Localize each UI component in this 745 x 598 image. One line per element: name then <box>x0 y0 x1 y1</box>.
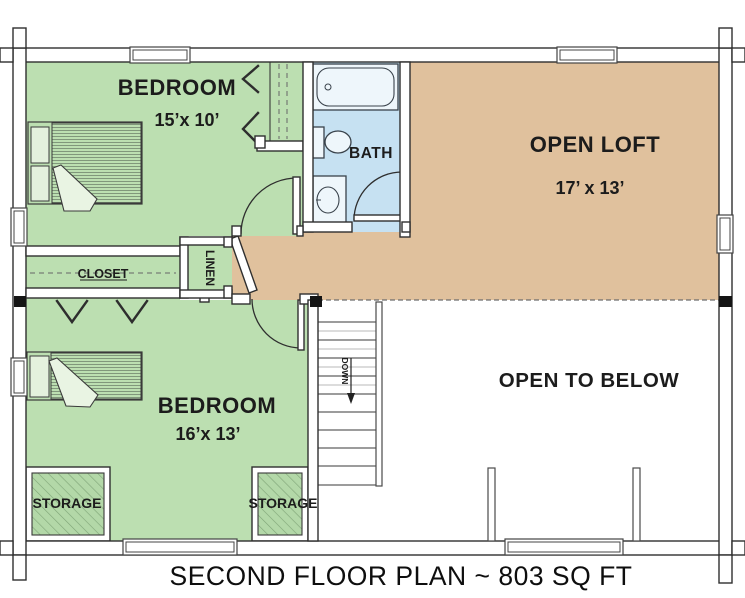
linen-jamb <box>224 286 232 298</box>
bedroom-top-label: BEDROOM <box>118 75 236 100</box>
linen-jamb <box>224 237 232 247</box>
log-end <box>732 48 745 62</box>
wall-hall-bottom <box>232 294 250 304</box>
bath-label: BATH <box>349 145 393 162</box>
loft-support-post <box>488 468 495 541</box>
wall-bath-right <box>400 62 410 237</box>
loft-support-post <box>633 468 640 541</box>
bathtub <box>313 64 398 110</box>
structural-post <box>14 296 26 307</box>
bedroom-bottom-label: BEDROOM <box>158 393 276 418</box>
storage-right-label: STORAGE <box>249 495 318 511</box>
window-top-loft <box>557 47 617 63</box>
pillow <box>30 356 49 397</box>
open-loft-dimensions: 17’ x 13’ <box>555 178 624 198</box>
open-loft-label: OPEN LOFT <box>530 132 660 157</box>
bedroom-bottom-door-leaf <box>298 300 304 350</box>
wall-bath-bottom <box>303 222 352 232</box>
wall-hall-top <box>297 226 303 236</box>
window-top-bedroom <box>130 47 190 63</box>
linen-label: LINEN <box>203 250 217 286</box>
window-left-lower <box>11 358 27 396</box>
floor-plan-page: BEDROOM 15’x 10’ BATH OPEN LOFT 17’ x 13… <box>0 0 745 598</box>
wall-hall-top <box>232 226 241 236</box>
log-end <box>13 555 26 580</box>
wall-bath-left <box>303 62 313 232</box>
floor-plan-drawing: BEDROOM 15’x 10’ BATH OPEN LOFT 17’ x 13… <box>0 0 745 598</box>
stair-rail <box>376 302 382 486</box>
bedroom-bottom-dimensions: 16’x 13’ <box>175 424 240 444</box>
log-end <box>0 48 13 62</box>
log-end <box>719 555 732 583</box>
bath-door-leaf <box>354 215 402 221</box>
wall-linen-left <box>180 237 188 298</box>
open-to-below-label: OPEN TO BELOW <box>499 369 680 392</box>
window-left-upper <box>11 208 27 246</box>
window-bottom-open-below <box>505 539 623 555</box>
bedroom-top-dimensions: 15’x 10’ <box>154 110 219 130</box>
pillow <box>31 127 49 163</box>
wall-closet-bottom <box>26 288 180 298</box>
log-end <box>719 28 732 48</box>
bed-double <box>28 122 142 211</box>
wall-bottom <box>13 541 732 555</box>
wall-bath-bottom <box>402 222 410 232</box>
log-end <box>13 28 26 48</box>
wall-bedroom-top-bottom <box>26 246 180 256</box>
storage-left-label: STORAGE <box>33 495 102 511</box>
sink-vanity <box>313 176 346 224</box>
closet-jamb <box>255 136 265 148</box>
structural-post <box>719 296 732 307</box>
closet-label: CLOSET <box>78 267 129 281</box>
window-right-loft <box>717 215 733 253</box>
pillow <box>31 166 49 201</box>
window-bottom-bedroom <box>123 539 237 555</box>
structural-post <box>310 296 322 307</box>
stairs-down-label: DOWN <box>340 358 350 385</box>
log-end <box>732 541 745 555</box>
wall-top <box>13 48 732 62</box>
log-end <box>0 541 13 555</box>
plan-title: SECOND FLOOR PLAN ~ 803 SQ FT <box>170 561 633 591</box>
